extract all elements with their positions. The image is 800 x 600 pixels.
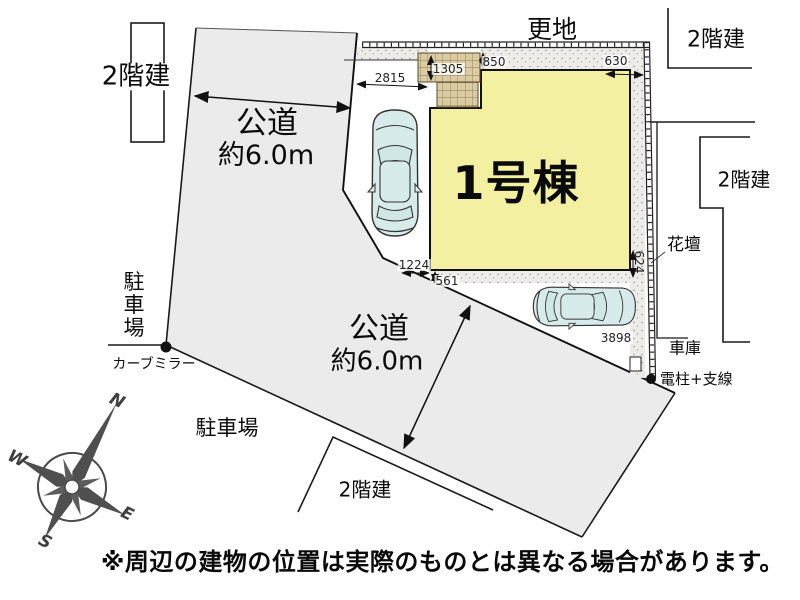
flower-bed-label: 花壇 xyxy=(667,237,701,255)
car-icon-horizontal xyxy=(533,284,635,329)
compass-icon xyxy=(0,375,170,566)
dim-porch-depth: 1305 xyxy=(432,63,465,75)
road-west-name: 公道 xyxy=(236,108,298,141)
dim-south-setback: 561 xyxy=(435,275,460,287)
neighbor-label-bottom: 2階建 xyxy=(337,480,394,501)
curve-mirror-dot xyxy=(161,342,172,353)
gate-box xyxy=(630,357,641,371)
neighbor-label-top-right: 2階建 xyxy=(685,28,747,51)
dim-northeast-setback: 630 xyxy=(604,55,629,67)
dim-east-setback: 624 xyxy=(633,250,645,275)
dim-southwest: 1224 xyxy=(398,259,431,271)
site-plan-page: 2階建 公道 約6.0m 更地 2815 1305 850 630 624 12… xyxy=(0,0,800,600)
vacant-land-label: 更地 xyxy=(527,17,577,43)
building-label: 1号棟 xyxy=(452,159,579,207)
fence-east xyxy=(644,42,656,378)
fence-north xyxy=(362,42,650,48)
neighbor-label-mid-right: 2階建 xyxy=(716,170,773,191)
neighbor-garage-outline xyxy=(657,122,688,338)
road-west-width: 約6.0m xyxy=(218,142,314,170)
parking-south-label: 駐車場 xyxy=(196,417,259,439)
parking-west-label: 駐車場 xyxy=(122,271,144,340)
garage-label: 車庫 xyxy=(669,341,701,358)
car-icon-vertical xyxy=(368,110,422,236)
road-south-width: 約6.0m xyxy=(331,348,424,375)
disclaimer-text: ※周辺の建物の位置は実際のものとは異なる場合があります。 xyxy=(101,550,784,575)
dim-car-space: 3898 xyxy=(600,332,633,344)
dim-west-frontage: 2815 xyxy=(374,72,407,84)
curve-mirror-label: カーブミラー xyxy=(112,358,195,373)
dim-north-setback: 850 xyxy=(482,56,507,68)
utility-pole-dot xyxy=(646,374,656,384)
utility-pole-label: 電柱+支線 xyxy=(660,372,733,388)
road-south-name: 公道 xyxy=(349,313,409,345)
neighbor-label-top-left: 2階建 xyxy=(100,63,173,90)
